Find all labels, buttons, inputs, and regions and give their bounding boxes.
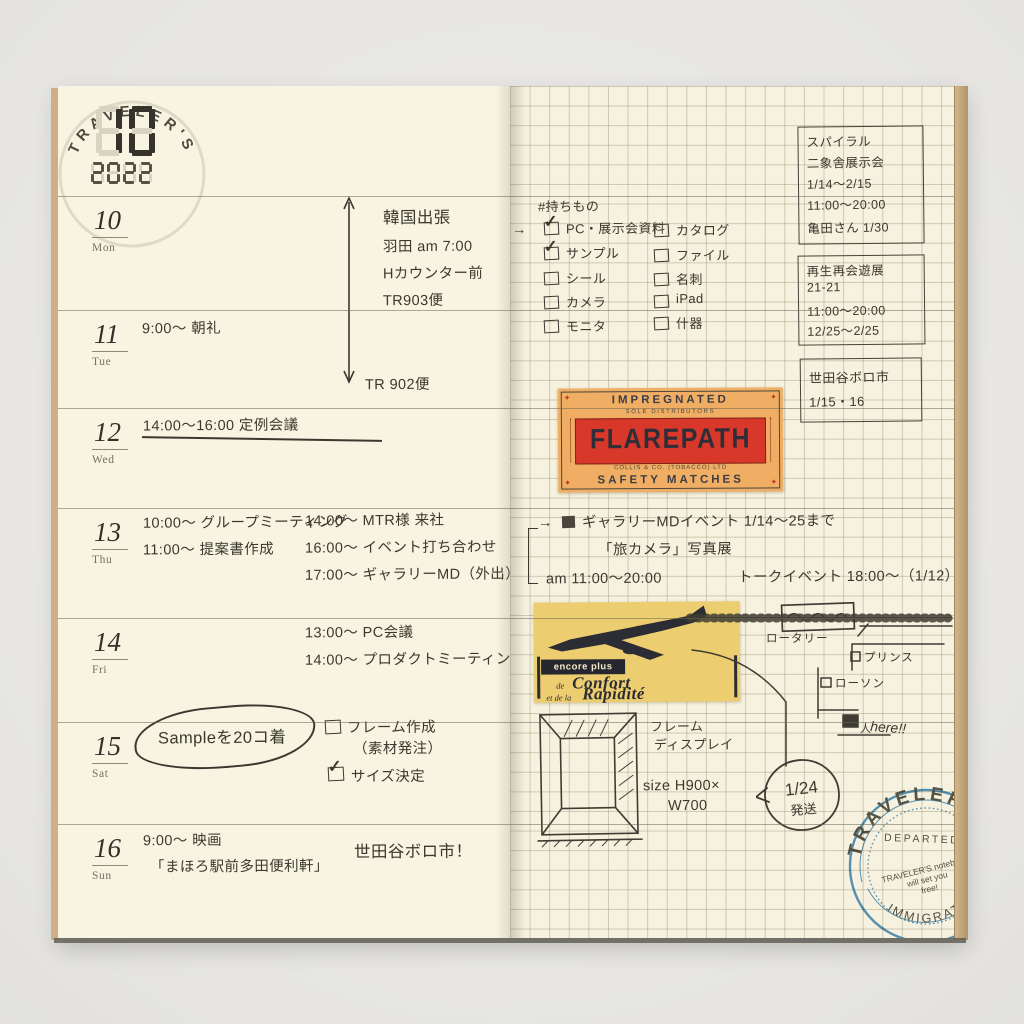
day-note: 11:00〜 提案書作成 bbox=[143, 538, 274, 560]
pack-checkbox bbox=[544, 272, 560, 286]
pack-item: シール bbox=[566, 268, 606, 287]
check-mark-icon: ✓ bbox=[327, 757, 342, 778]
weekday-label: Fri bbox=[92, 664, 107, 676]
event-line: 21-21 bbox=[807, 280, 841, 295]
sticker-rule bbox=[537, 657, 540, 699]
task-checkbox-checked: ✓ bbox=[328, 767, 345, 782]
event-box-boroichi: 世田谷ボロ市 1/15・16 bbox=[800, 357, 923, 422]
map-label-lawson: ローソン bbox=[835, 678, 885, 690]
event-line: 亀田さん 1/30 bbox=[807, 216, 889, 236]
pack-item: PC・展示会資料 bbox=[566, 218, 665, 238]
kraft-edge-left bbox=[51, 88, 58, 940]
day-note: 14:00〜 プロダクトミーティング bbox=[305, 647, 510, 670]
pack-item: 名刺 bbox=[676, 269, 703, 288]
weekday-label: Sat bbox=[92, 768, 109, 780]
weekday-label: Sun bbox=[92, 870, 112, 882]
day-number: 16 bbox=[94, 833, 121, 864]
check-mark-icon: ✓ bbox=[543, 212, 558, 233]
week-row-line bbox=[58, 196, 954, 197]
pack-item: カタログ bbox=[676, 220, 730, 239]
day-number: 12 bbox=[94, 417, 121, 448]
event-box-exhibit: 再生再会遊展 21-21 11:00〜20:00 12/25〜2/25 bbox=[798, 254, 926, 345]
bubble-date: 1/24 bbox=[784, 777, 819, 799]
trip-note: 羽田 am 7:00 bbox=[383, 235, 473, 257]
hand-bracket bbox=[528, 528, 538, 584]
trip-note: TR903便 bbox=[383, 289, 444, 310]
here-building-box bbox=[843, 715, 858, 727]
check-mark-icon: ✓ bbox=[543, 237, 558, 258]
day-number: 11 bbox=[94, 319, 119, 350]
sticker-maker-text: COLLIS & CO. (TOBACCO) LTD bbox=[558, 464, 783, 471]
bubble-text: 発送 bbox=[790, 801, 817, 819]
return-flight-note: TR 902便 bbox=[365, 373, 430, 394]
event-line: 再生再会遊展 bbox=[807, 259, 885, 279]
pack-checkbox bbox=[654, 295, 670, 309]
pack-checkbox-checked: ✓ bbox=[544, 222, 560, 236]
day-number: 13 bbox=[94, 517, 121, 548]
day-rule bbox=[92, 659, 128, 660]
week-row-line bbox=[58, 310, 954, 311]
week-row-line bbox=[58, 824, 954, 825]
svg-text:TRAVELER'S: TRAVELER'S bbox=[836, 776, 954, 863]
frame-note-line: フレーム bbox=[650, 716, 703, 735]
sticker-sub-text: SOLE DISTRIBUTORS bbox=[558, 408, 783, 415]
day-note: 16:00〜 イベント打ち合わせ bbox=[305, 535, 497, 557]
sticker-bottom-text: SAFETY MATCHES bbox=[558, 473, 783, 486]
frame-note-line: ディスプレイ bbox=[654, 734, 734, 754]
event-line: スパイラル bbox=[806, 131, 871, 151]
weekday-label: Mon bbox=[92, 242, 116, 254]
task-label: サイズ決定 bbox=[351, 765, 425, 787]
day-rule bbox=[92, 865, 128, 866]
ad-word: Rapidité bbox=[582, 684, 645, 704]
day-rule bbox=[92, 237, 128, 238]
pack-checkbox bbox=[654, 317, 670, 331]
day-number: 15 bbox=[94, 731, 121, 762]
day-note: 9:00〜 朝礼 bbox=[142, 317, 221, 339]
side-rule bbox=[770, 417, 771, 461]
sticker-red-band: FLAREPATH bbox=[575, 418, 766, 465]
day-side-note: 世田谷ボロ市！ bbox=[354, 838, 472, 863]
day-rule bbox=[92, 763, 128, 764]
sticker-top-text: IMPREGNATED bbox=[558, 393, 783, 406]
frame-size-note: size H900× bbox=[643, 778, 720, 795]
day-note: 14:00〜16:00 定例会議 bbox=[143, 413, 299, 435]
event-line: 1/14〜2/15 bbox=[807, 173, 872, 193]
event-line: 二象舎展示会 bbox=[807, 151, 885, 171]
event-line: 12/25〜2/25 bbox=[807, 320, 879, 340]
day-note: 17:00〜 ギャラリーMD（外出） bbox=[305, 562, 510, 585]
ad-small-word: et de la bbox=[546, 692, 571, 702]
gallery-note-line: 「旅カメラ」写真展 bbox=[598, 538, 732, 560]
kraft-edge-right bbox=[954, 86, 968, 940]
sticker-brand-name: FLAREPATH bbox=[576, 423, 765, 456]
weekday-label: Wed bbox=[92, 454, 115, 466]
ad-small-word: de bbox=[556, 681, 564, 691]
weekday-label: Thu bbox=[92, 554, 112, 566]
week-row-line bbox=[58, 408, 954, 409]
day-note: 13:00〜 PC会議 bbox=[305, 621, 414, 643]
event-line: 世田谷ボロ市 bbox=[809, 366, 890, 386]
arrow-right-icon: → bbox=[512, 222, 527, 238]
gallery-note-line: トークイベント 18:00〜（1/12） bbox=[738, 564, 954, 587]
day-rule bbox=[92, 351, 128, 352]
lawson-box bbox=[821, 678, 831, 687]
pack-checkbox bbox=[544, 296, 560, 310]
task-sub-label: （素材発注） bbox=[353, 737, 443, 759]
trip-destination: 韓国出張 bbox=[383, 204, 451, 228]
stamp-arc-bottom: IMMIGRATION bbox=[883, 879, 954, 936]
year-display bbox=[91, 162, 155, 189]
task-label: フレーム作成 bbox=[347, 716, 436, 738]
week-row-line bbox=[58, 508, 954, 509]
trip-note: Hカウンター前 bbox=[383, 262, 483, 284]
grid-memo-page: #持ちもの → ✓ PC・展示会資料 ✓ サンプル シール カメラ モニタ カタ… bbox=[510, 86, 954, 938]
pack-checkbox bbox=[544, 320, 560, 334]
pack-checkbox-checked: ✓ bbox=[544, 247, 560, 261]
weekly-page: TRAVELER'S 10 Mon 韓国出張 羽田 am 7:00 Hカウンター… bbox=[58, 86, 510, 938]
filled-checkbox bbox=[562, 516, 575, 528]
month-display bbox=[96, 106, 162, 161]
pack-checkbox bbox=[654, 249, 670, 263]
flarepath-matchbox-sticker: ✦ ✦ ✦ ✦ IMPREGNATED SOLE DISTRIBUTORS FL… bbox=[558, 387, 784, 492]
day-note: 「まほろ駅前多田便利軒」 bbox=[150, 854, 329, 876]
event-box-spiral: スパイラル 二象舎展示会 1/14〜2/15 11:00〜20:00 亀田さん … bbox=[797, 125, 924, 244]
stamp-band: DEPARTED bbox=[884, 832, 954, 847]
day-rule bbox=[92, 449, 128, 450]
map-label-here: here!! bbox=[870, 718, 907, 736]
svg-text:IMMIGRATION: IMMIGRATION bbox=[883, 879, 954, 936]
day-note: 14:00〜 MTR様 来社 bbox=[305, 509, 445, 531]
day-rule bbox=[92, 549, 128, 550]
pack-item: iPad bbox=[676, 291, 704, 306]
notebook-spread: TRAVELER'S 10 Mon 韓国出張 羽田 am 7:00 Hカウンター… bbox=[58, 86, 966, 938]
travelers-immigration-stamp: TRAVELER'S DEPARTED TRAVELER'S notebook … bbox=[836, 776, 954, 938]
frame-sketch bbox=[535, 710, 647, 848]
pack-checkbox bbox=[654, 273, 670, 287]
trip-span-arrow bbox=[339, 192, 359, 392]
hand-underline bbox=[142, 435, 382, 442]
pack-item: サンプル bbox=[566, 243, 619, 262]
arrow-right-icon: → bbox=[538, 515, 553, 531]
pack-item: モニタ bbox=[566, 316, 606, 335]
weekday-label: Tue bbox=[92, 356, 111, 368]
week-row-line bbox=[58, 722, 954, 723]
day-note: 9:00〜 映画 bbox=[143, 829, 222, 851]
day-number: 14 bbox=[94, 627, 121, 658]
photo-of-planner: TRAVELER'S 10 Mon 韓国出張 羽田 am 7:00 Hカウンター… bbox=[0, 0, 1024, 1024]
side-rule bbox=[570, 419, 571, 463]
pack-item: 什器 bbox=[676, 313, 703, 332]
gallery-note-line: ギャラリーMDイベント 1/14〜25まで bbox=[582, 509, 835, 532]
pack-item: ファイル bbox=[676, 245, 730, 264]
day-number: 10 bbox=[94, 205, 121, 236]
circled-note: Sampleを20コ着 bbox=[158, 724, 286, 749]
stamp-arc-top: TRAVELER'S bbox=[836, 776, 954, 863]
gallery-note-line: am 11:00〜20:00 bbox=[546, 567, 662, 589]
pack-item: カメラ bbox=[566, 292, 606, 311]
pack-checkbox bbox=[654, 224, 670, 238]
week-row-line bbox=[58, 618, 954, 619]
page-bottom-edge bbox=[54, 938, 966, 943]
map-label-prince: プリンス bbox=[864, 651, 914, 664]
frame-size-note: W700 bbox=[668, 798, 708, 814]
map-label-rotary: ロータリー bbox=[766, 632, 829, 645]
